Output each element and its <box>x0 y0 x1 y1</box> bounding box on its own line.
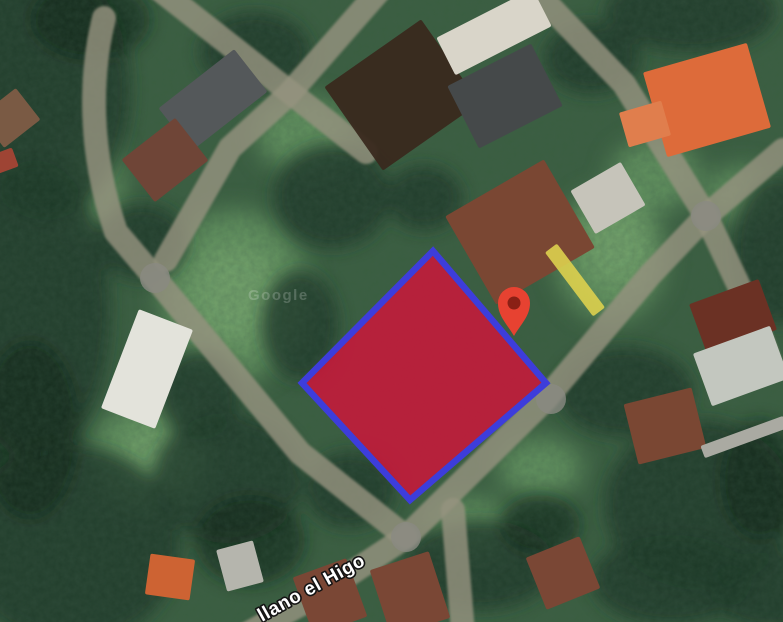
road-south-branch <box>453 510 463 622</box>
road-junction-node <box>140 263 170 293</box>
house-orange-roof-sw <box>145 554 195 601</box>
satellite-map: Google llano el Higo <box>0 0 783 622</box>
google-watermark: Google <box>248 287 309 304</box>
road-junction-node <box>391 522 421 552</box>
road-junction-node <box>691 201 721 231</box>
map-pin-dot <box>508 297 521 310</box>
satellite-map-viewport[interactable]: Google llano el Higo <box>0 0 783 622</box>
